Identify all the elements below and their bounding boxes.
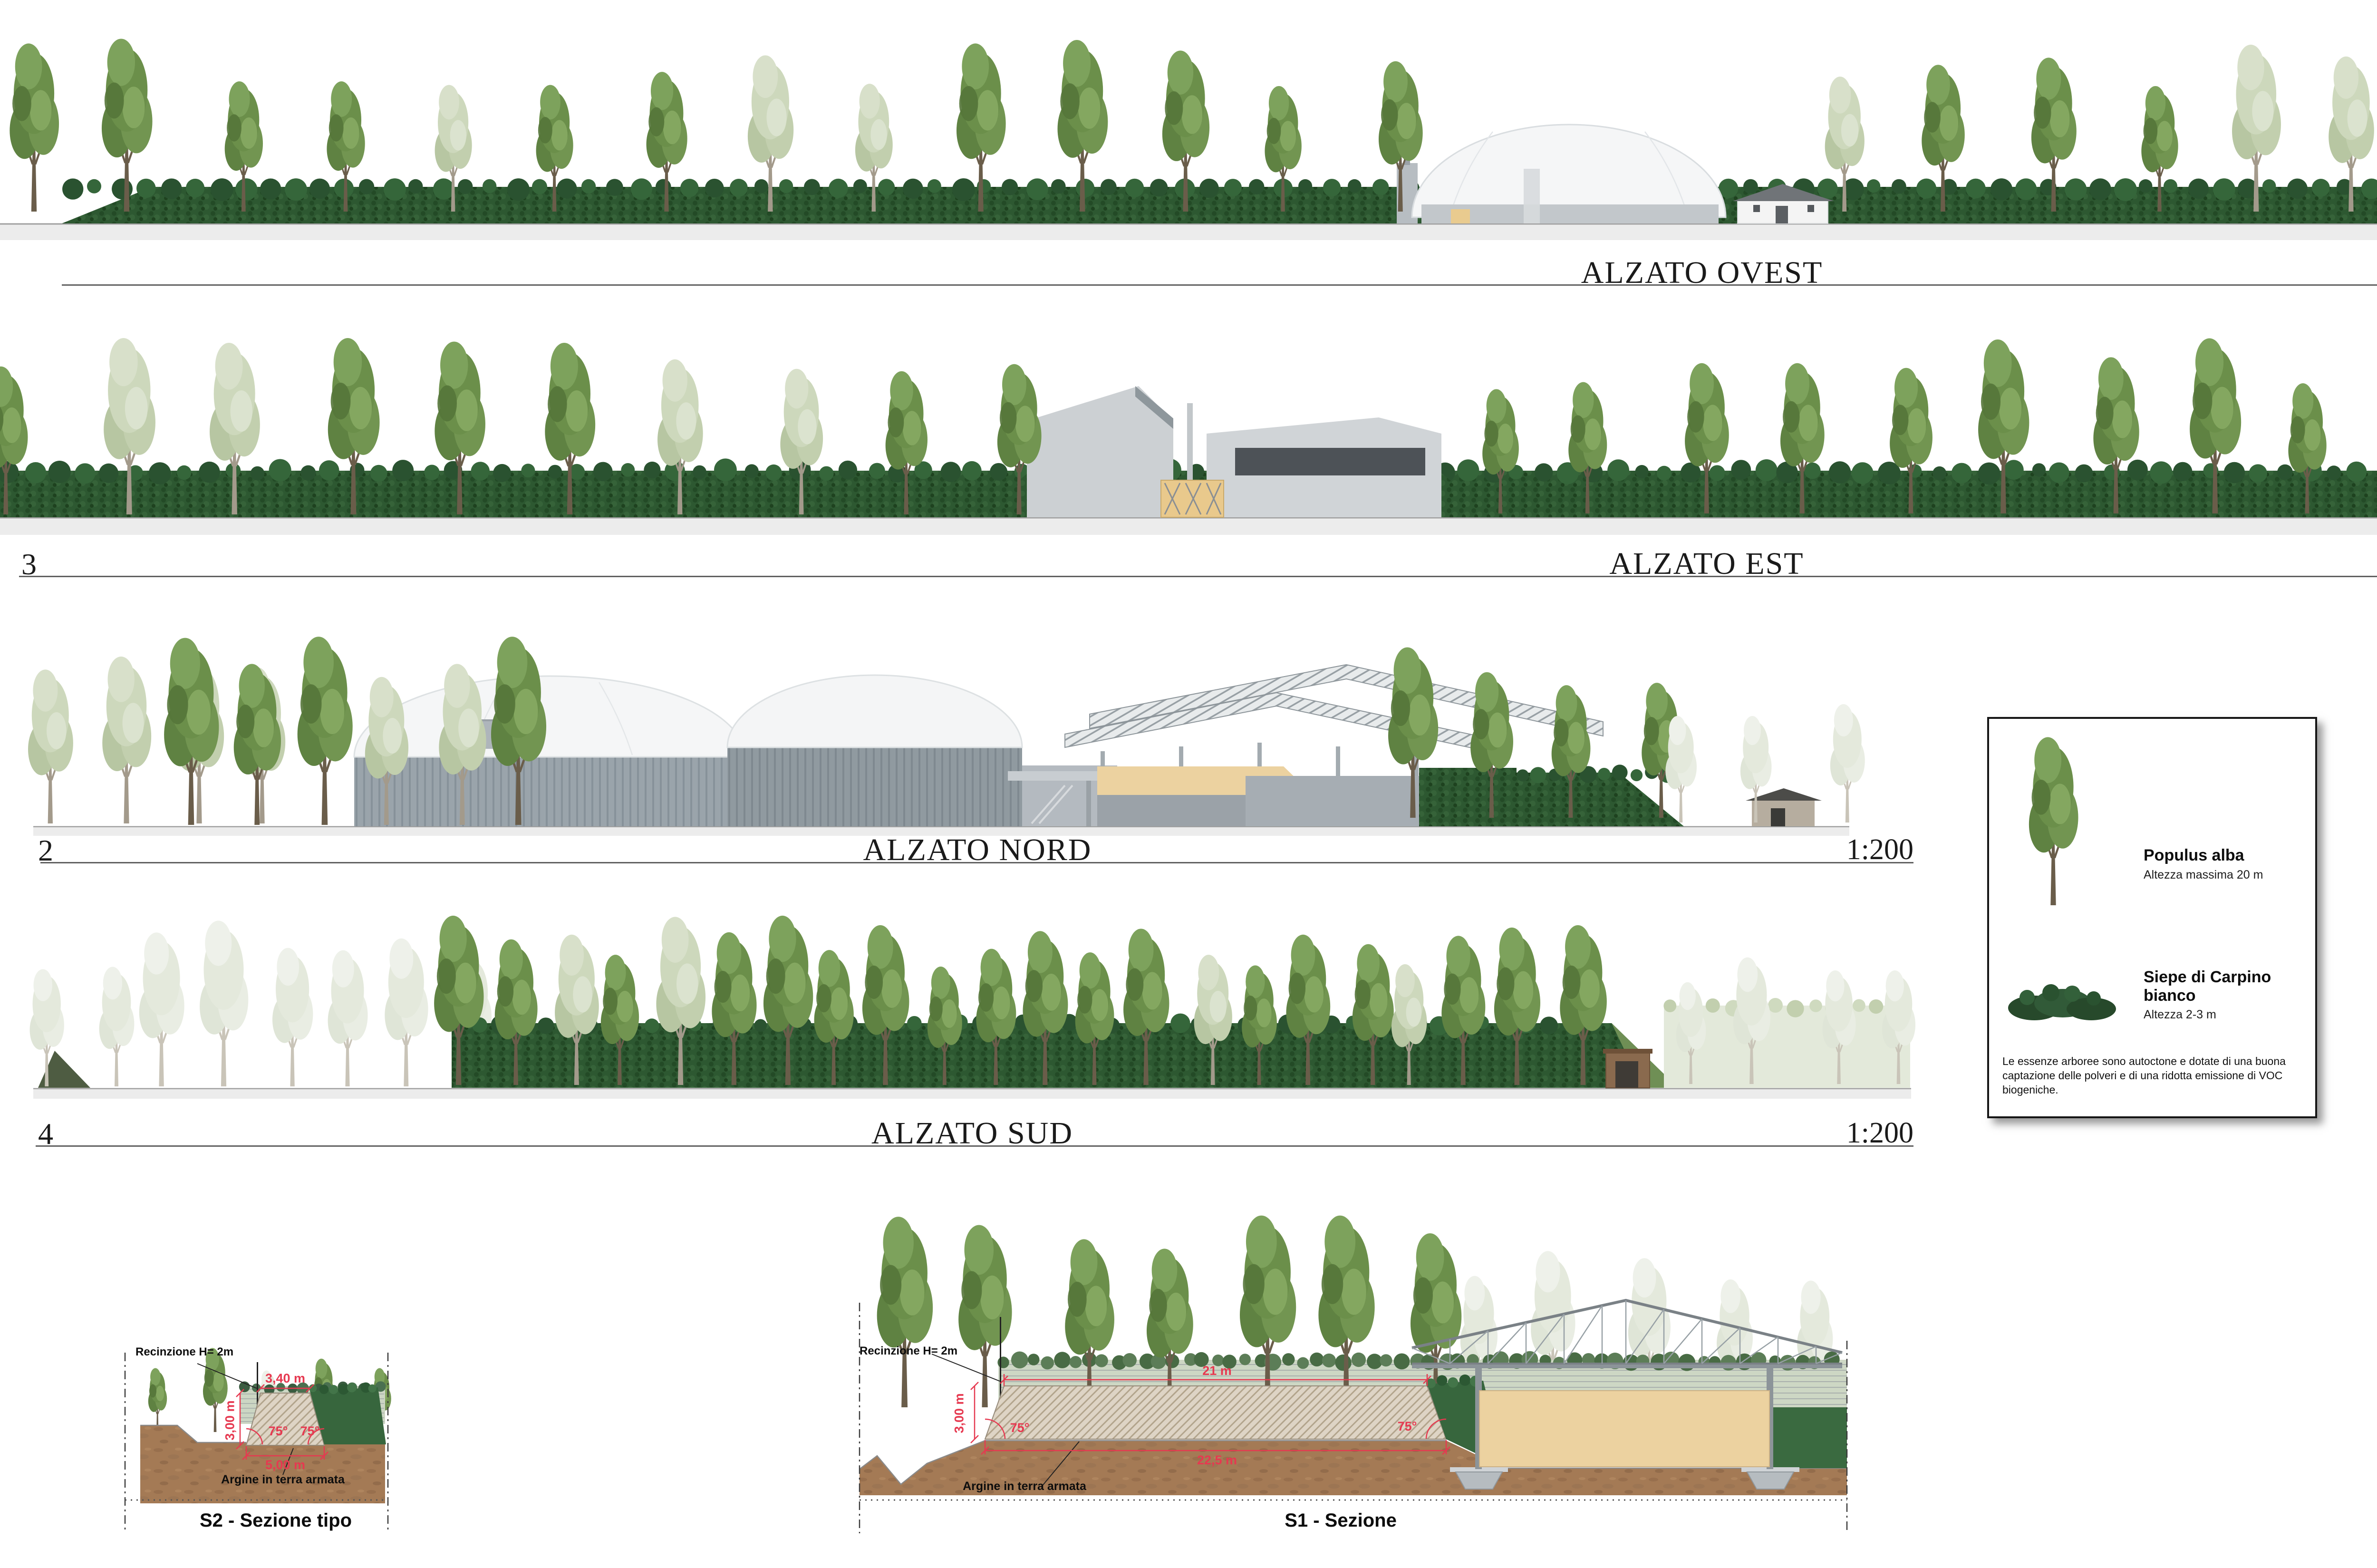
s1-section-title: S1 - Sezione: [1222, 1510, 1459, 1531]
alzato-nord-drawing: [29, 609, 1854, 842]
s1-angle-left: 75°: [1003, 1421, 1036, 1435]
legend-item-detail: Altezza 2-3 m: [2144, 1008, 2305, 1022]
hornbeam-hedge-icon: [2006, 970, 2120, 1022]
digester-dome: [727, 675, 1022, 747]
stored-material: [1479, 1391, 1769, 1467]
poplar-tree-icon: [2003, 728, 2103, 909]
alzato-ovest-drawing: [0, 12, 2377, 240]
sud-number: 4: [38, 1116, 53, 1152]
ovest-baseline: [62, 284, 2377, 286]
section-s1-drawing: [856, 1203, 1854, 1550]
nord-scale: 1:200: [1797, 833, 1913, 867]
s1-fence-label: Recinzione H= 2m: [860, 1345, 957, 1358]
s1-height-dim: 3,00 m: [952, 1385, 967, 1442]
s2-height-dim: 3,00 m: [223, 1394, 238, 1447]
s1-embankment-label: Argine in terra armata: [946, 1480, 1103, 1493]
s1-top-width-dim: 21 m: [1165, 1364, 1269, 1378]
drawing-sheet: ALZATO OVEST 1:200: [0, 0, 2377, 1568]
ovest-title: ALZATO OVEST: [1464, 255, 1940, 291]
legend-item-name: Siepe di Carpino bianco: [2144, 968, 2286, 1005]
s1-base-width-dim: 22,5 m: [1160, 1453, 1274, 1468]
digester-dome: [1412, 125, 1726, 217]
s2-section-title: S2 - Sezione tipo: [157, 1510, 395, 1531]
sud-scale: 1:200: [1797, 1116, 1913, 1150]
s2-embankment-label: Argine in terra armata: [207, 1473, 359, 1487]
sud-title: ALZATO SUD: [734, 1115, 1210, 1152]
est-number: 3: [21, 547, 37, 582]
plant-legend: Populus alba Altezza massima 20 m Siepe …: [1987, 717, 2317, 1118]
legend-note: Le essenze arboree sono autoctone e dota…: [2002, 1055, 2290, 1097]
s2-angle-right: 75°: [296, 1424, 324, 1439]
s2-angle-left: 75°: [264, 1424, 292, 1439]
legend-item-detail: Altezza massima 20 m: [2144, 868, 2305, 882]
est-title: ALZATO EST: [1469, 546, 1944, 582]
nord-title: ALZATO NORD: [740, 832, 1215, 868]
s2-base-width-dim: 5,00 m: [250, 1458, 321, 1472]
alzato-est-drawing: [0, 309, 2377, 535]
s1-angle-right: 75°: [1391, 1419, 1424, 1434]
biogas-plant-west: [1397, 125, 1834, 223]
alzato-sud-drawing: [29, 894, 1916, 1103]
s2-top-width-dim: 3,40 m: [250, 1371, 321, 1386]
brown-shelter: [1603, 1049, 1652, 1088]
digester-dome: [354, 676, 745, 757]
est-baseline: [19, 576, 2377, 577]
plant-buildings-east: [975, 386, 1497, 517]
legend-item-name: Populus alba: [2144, 846, 2305, 865]
s2-fence-label: Recinzione H= 2m: [135, 1345, 233, 1359]
embankment: [985, 1386, 1446, 1439]
nord-number: 2: [38, 833, 53, 868]
